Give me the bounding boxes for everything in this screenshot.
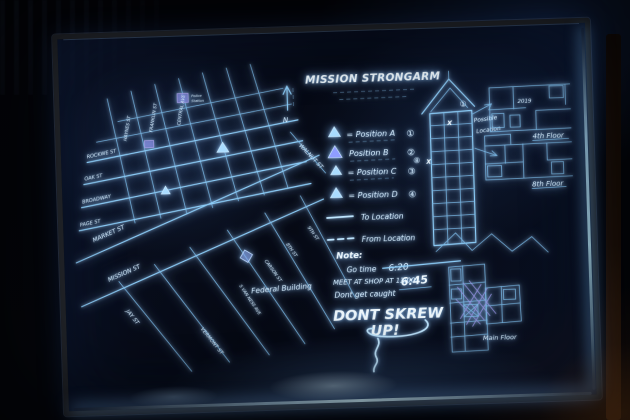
go-time-old: 6:20 bbox=[388, 262, 409, 274]
from-location-label: From Location bbox=[362, 233, 416, 244]
photo-of-glowing-mission-board: N HAYNES ST FRANKLIN ST CENTRAL AVE ROCK… bbox=[0, 0, 630, 420]
street-label-haynes: HAYNES ST bbox=[123, 114, 133, 141]
building-x-mark: X bbox=[446, 119, 453, 127]
caution-note: Dont get caught bbox=[334, 289, 396, 300]
room-number: 2019 bbox=[517, 99, 532, 105]
legend-row-d-badge: ④ bbox=[408, 190, 416, 200]
legend-row-b-label: Position B bbox=[349, 148, 389, 158]
street-label-market: MARKET ST bbox=[92, 223, 127, 244]
street-label-walnut: WALNUT ST bbox=[297, 143, 324, 171]
building-elevation: ① X ⑧ X Possible Location bbox=[410, 68, 548, 256]
mission-notes: Note: Go time 6:20 6:45 MEET AT SHOP AT … bbox=[331, 248, 464, 373]
street-label-mission: MISSION ST bbox=[107, 263, 143, 284]
glass-mission-board: N HAYNES ST FRANKLIN ST CENTRAL AVE ROCK… bbox=[52, 18, 602, 417]
mission-title: MISSION STRONGARM bbox=[305, 70, 441, 86]
led-edge-bottom bbox=[74, 392, 592, 411]
mission-legend: MISSION STRONGARM = Position A ① Positio… bbox=[305, 70, 446, 245]
federal-building-label: Federal Building bbox=[251, 281, 313, 295]
building-x-mark-side: X bbox=[425, 159, 431, 166]
police-station-label-2: Station bbox=[191, 99, 205, 103]
swoosh-tail bbox=[373, 338, 380, 371]
zigzag-line bbox=[436, 230, 549, 256]
legend-triangle-a bbox=[328, 127, 340, 137]
board-drawing: N HAYNES ST FRANKLIN ST CENTRAL AVE ROCK… bbox=[63, 29, 579, 395]
legend-row-a-label: = Position A bbox=[346, 129, 395, 140]
police-station-label-1: Police bbox=[191, 94, 202, 98]
legend-triangle-b bbox=[328, 146, 342, 158]
map-position-triangle bbox=[217, 142, 229, 152]
legend-row-c-label: = Position C bbox=[347, 167, 396, 178]
building-badge-top: ① bbox=[459, 100, 466, 109]
from-location-line-swatch bbox=[328, 238, 354, 240]
street-label-carson: CARSON ST bbox=[263, 259, 284, 285]
street-label-broadway: BROADWAY bbox=[82, 194, 113, 206]
building-badge-side: ⑧ bbox=[413, 156, 420, 165]
street-label-vermont: VERMONT ST bbox=[199, 327, 225, 357]
arrow-to-4th-floor bbox=[472, 104, 492, 115]
street-label-rockwe: ROCKWE ST bbox=[86, 148, 118, 160]
note-heading: Note: bbox=[336, 251, 362, 262]
possible-location-1: Possible bbox=[474, 115, 499, 124]
main-floor-label: Main Floor bbox=[483, 333, 518, 342]
to-location-label: To Location bbox=[361, 212, 404, 222]
floor-plans: 2019 4th Floor 8th Floor bbox=[443, 82, 579, 352]
arrow-to-8th-floor bbox=[475, 148, 497, 157]
legend-triangle-c bbox=[330, 166, 341, 175]
led-edge-right bbox=[581, 28, 595, 390]
legend-row-a-badge: ① bbox=[406, 129, 414, 139]
street-label-franklin: FRANKLIN ST bbox=[148, 102, 159, 133]
compass-label: N bbox=[283, 116, 289, 124]
street-label-jay: JAY ST bbox=[124, 308, 141, 327]
street-label-9th: 9TH ST bbox=[306, 225, 321, 243]
wooden-post bbox=[606, 34, 621, 420]
street-map: N HAYNES ST FRANKLIN ST CENTRAL AVE ROCK… bbox=[70, 61, 357, 375]
legend-triangle-d bbox=[330, 188, 342, 198]
map-marker-box bbox=[145, 140, 154, 147]
to-location-line-swatch bbox=[327, 216, 353, 218]
legend-row-d-label: = Position D bbox=[348, 190, 398, 201]
legend-row-c-badge: ③ bbox=[407, 167, 415, 177]
marked-zone-hatch bbox=[455, 280, 496, 327]
go-time-label: Go time bbox=[347, 264, 377, 274]
